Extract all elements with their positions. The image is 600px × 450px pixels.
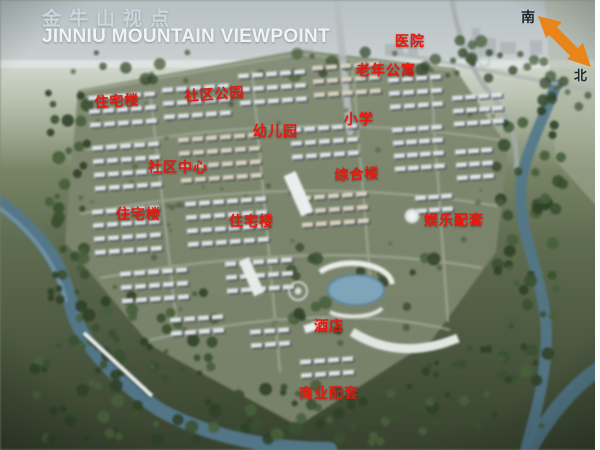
label-entertainment-facilities: 娱乐配套	[424, 210, 484, 230]
label-residential-1: 住宅楼	[94, 90, 140, 112]
label-hotel: 酒店	[314, 316, 344, 336]
label-community-center: 社区中心	[148, 157, 208, 177]
compass-south-label: 南	[521, 7, 535, 27]
label-kindergarten: 幼儿园	[253, 121, 298, 141]
label-residential-3: 住宅楼	[229, 211, 274, 231]
label-primary-school: 小学	[344, 109, 374, 129]
label-community-park: 社区公园	[184, 82, 245, 106]
label-hospital: 医院	[395, 31, 425, 51]
label-complex-building: 综合楼	[334, 163, 380, 185]
label-residential-2: 住宅楼	[116, 204, 161, 224]
scan-edge	[595, 0, 600, 450]
aerial-masterplan-rendering: 金牛山视点 JINNIU MOUNTAIN VIEWPOINT 南 北 医院 老…	[0, 0, 600, 450]
label-senior-apartments: 老年公寓	[356, 60, 416, 80]
page-title-english: JINNIU MOUNTAIN VIEWPOINT	[42, 26, 330, 48]
compass-north-label: 北	[574, 65, 587, 84]
label-commercial-facilities: 商业配套	[299, 383, 359, 403]
compass-arrow-icon	[536, 12, 594, 68]
